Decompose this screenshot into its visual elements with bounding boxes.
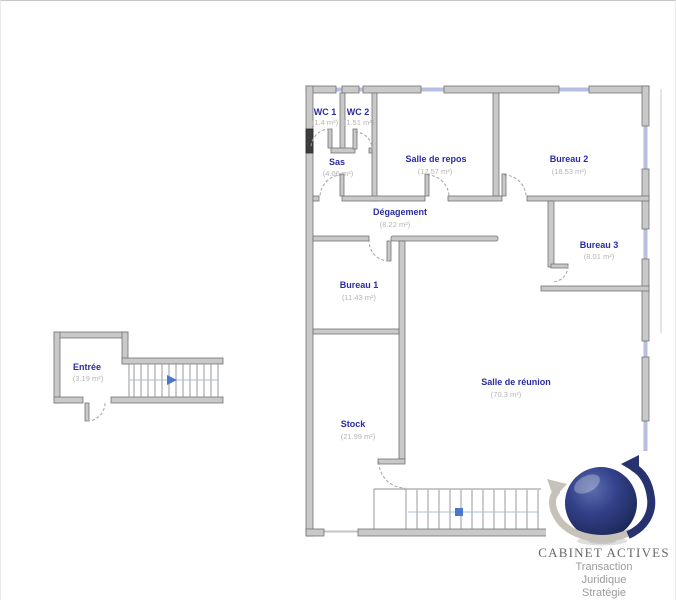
door-leaf (425, 174, 429, 196)
window (644, 229, 648, 259)
wall-segment (378, 459, 405, 464)
room-area-stock: (21.99 m²) (341, 432, 376, 441)
room-label-sas: Sas (329, 157, 345, 167)
wall-segment (358, 529, 563, 536)
brand-name: CABINET ACTIVES (538, 545, 670, 560)
door-swing-arc (504, 175, 526, 197)
door-swing-arc (355, 132, 372, 149)
wall-segment (313, 236, 369, 241)
room-label-entree: Entrée (73, 362, 101, 372)
room-label-bureau-1: Bureau 1 (340, 280, 379, 290)
room-area-bureau-3: (8.01 m²) (584, 252, 615, 261)
wall-segment (54, 397, 83, 403)
wall-segment (342, 86, 359, 93)
company-logo: CABINET ACTIVES Transaction Juridique St… (538, 451, 676, 600)
wall-segment (399, 241, 405, 459)
room-area-sas: (4.06 m²) (323, 169, 354, 178)
room-label-wc2: WC 2 (347, 107, 370, 117)
door-swing-arc (87, 403, 105, 421)
door-swing-arc (369, 241, 389, 261)
wall-segment (306, 529, 324, 536)
room-label-stock: Stock (341, 419, 367, 429)
wall-segment (448, 196, 502, 201)
stairs-direction-marker (455, 508, 463, 516)
wall-segment (122, 358, 223, 364)
door-swing-arc (311, 129, 330, 148)
window (359, 88, 363, 92)
room-area-bureau-1: (11.43 m²) (342, 293, 377, 302)
room-area-bureau-2: (18.53 m²) (552, 167, 587, 176)
door-leaf (502, 174, 506, 196)
tagline-transaction: Transaction (575, 561, 632, 573)
wall-segment (642, 357, 649, 421)
stairs-direction-arrow (167, 375, 177, 385)
floor-plan-page: WC 1 (1.4 m²) WC 2 (1.51 m²) Sas (4.06 m… (0, 0, 676, 600)
room-label-wc1: WC 1 (314, 107, 337, 117)
door-leaf (551, 264, 568, 268)
wall-segment (642, 259, 649, 341)
room-labels: WC 1 (1.4 m²) WC 2 (1.51 m²) Sas (4.06 m… (312, 107, 618, 441)
wall-segment (342, 196, 425, 201)
wall-segment (363, 86, 421, 93)
door-leaf (328, 129, 332, 148)
room-area-degagement: (8.22 m²) (380, 220, 411, 229)
wall-segment (306, 86, 313, 536)
window (421, 88, 444, 92)
room-label-bureau-3: Bureau 3 (580, 240, 619, 250)
window (336, 88, 342, 92)
wall-segment (548, 201, 554, 267)
tagline-strategie: Stratégie (582, 587, 626, 599)
wall-segment (642, 86, 649, 126)
room-label-salle-de-reunion: Salle de réunion (481, 377, 551, 387)
wall-segment (54, 332, 60, 403)
wall-segment (493, 93, 499, 196)
door-swing-arc (379, 462, 405, 488)
room-area-entree: (3.19 m²) (73, 374, 104, 383)
window (644, 341, 648, 357)
door-leaf (85, 403, 89, 421)
wall-segment (391, 236, 498, 241)
room-label-degagement: Dégagement (373, 207, 427, 217)
room-area-wc2: (1.51 m²) (344, 118, 375, 127)
staircase-entry (129, 364, 219, 397)
room-area-salle-de-repos: (12.57 m²) (418, 167, 453, 176)
wall-segment (111, 397, 223, 403)
room-label-salle-de-repos: Salle de repos (405, 154, 466, 164)
wall-segment (313, 196, 319, 201)
wall-segment (331, 148, 355, 153)
window (644, 126, 648, 169)
door-swing-arc (427, 175, 449, 197)
wall-segment (54, 332, 128, 338)
entry-annex-plan: Entrée (3.19 m²) (54, 332, 223, 421)
globe-sphere (565, 467, 637, 539)
wall-segment (589, 86, 649, 93)
wall-segment (313, 329, 399, 334)
tagline-juridique: Juridique (582, 574, 627, 586)
wall-segment (541, 286, 649, 291)
room-area-salle-de-reunion: (70.3 m²) (491, 390, 522, 399)
wall-segment (372, 93, 377, 201)
room-label-bureau-2: Bureau 2 (550, 154, 589, 164)
floor-plan-image: WC 1 (1.4 m²) WC 2 (1.51 m²) Sas (4.06 m… (1, 1, 676, 600)
window (559, 88, 589, 92)
room-area-wc1: (1.4 m²) (312, 118, 339, 127)
wall-segment (444, 86, 559, 93)
window-threshold (324, 531, 358, 533)
wall-segment (527, 196, 649, 201)
door-leaf (387, 241, 391, 261)
staircase-main (374, 489, 541, 529)
door-swing-arc (320, 175, 342, 197)
